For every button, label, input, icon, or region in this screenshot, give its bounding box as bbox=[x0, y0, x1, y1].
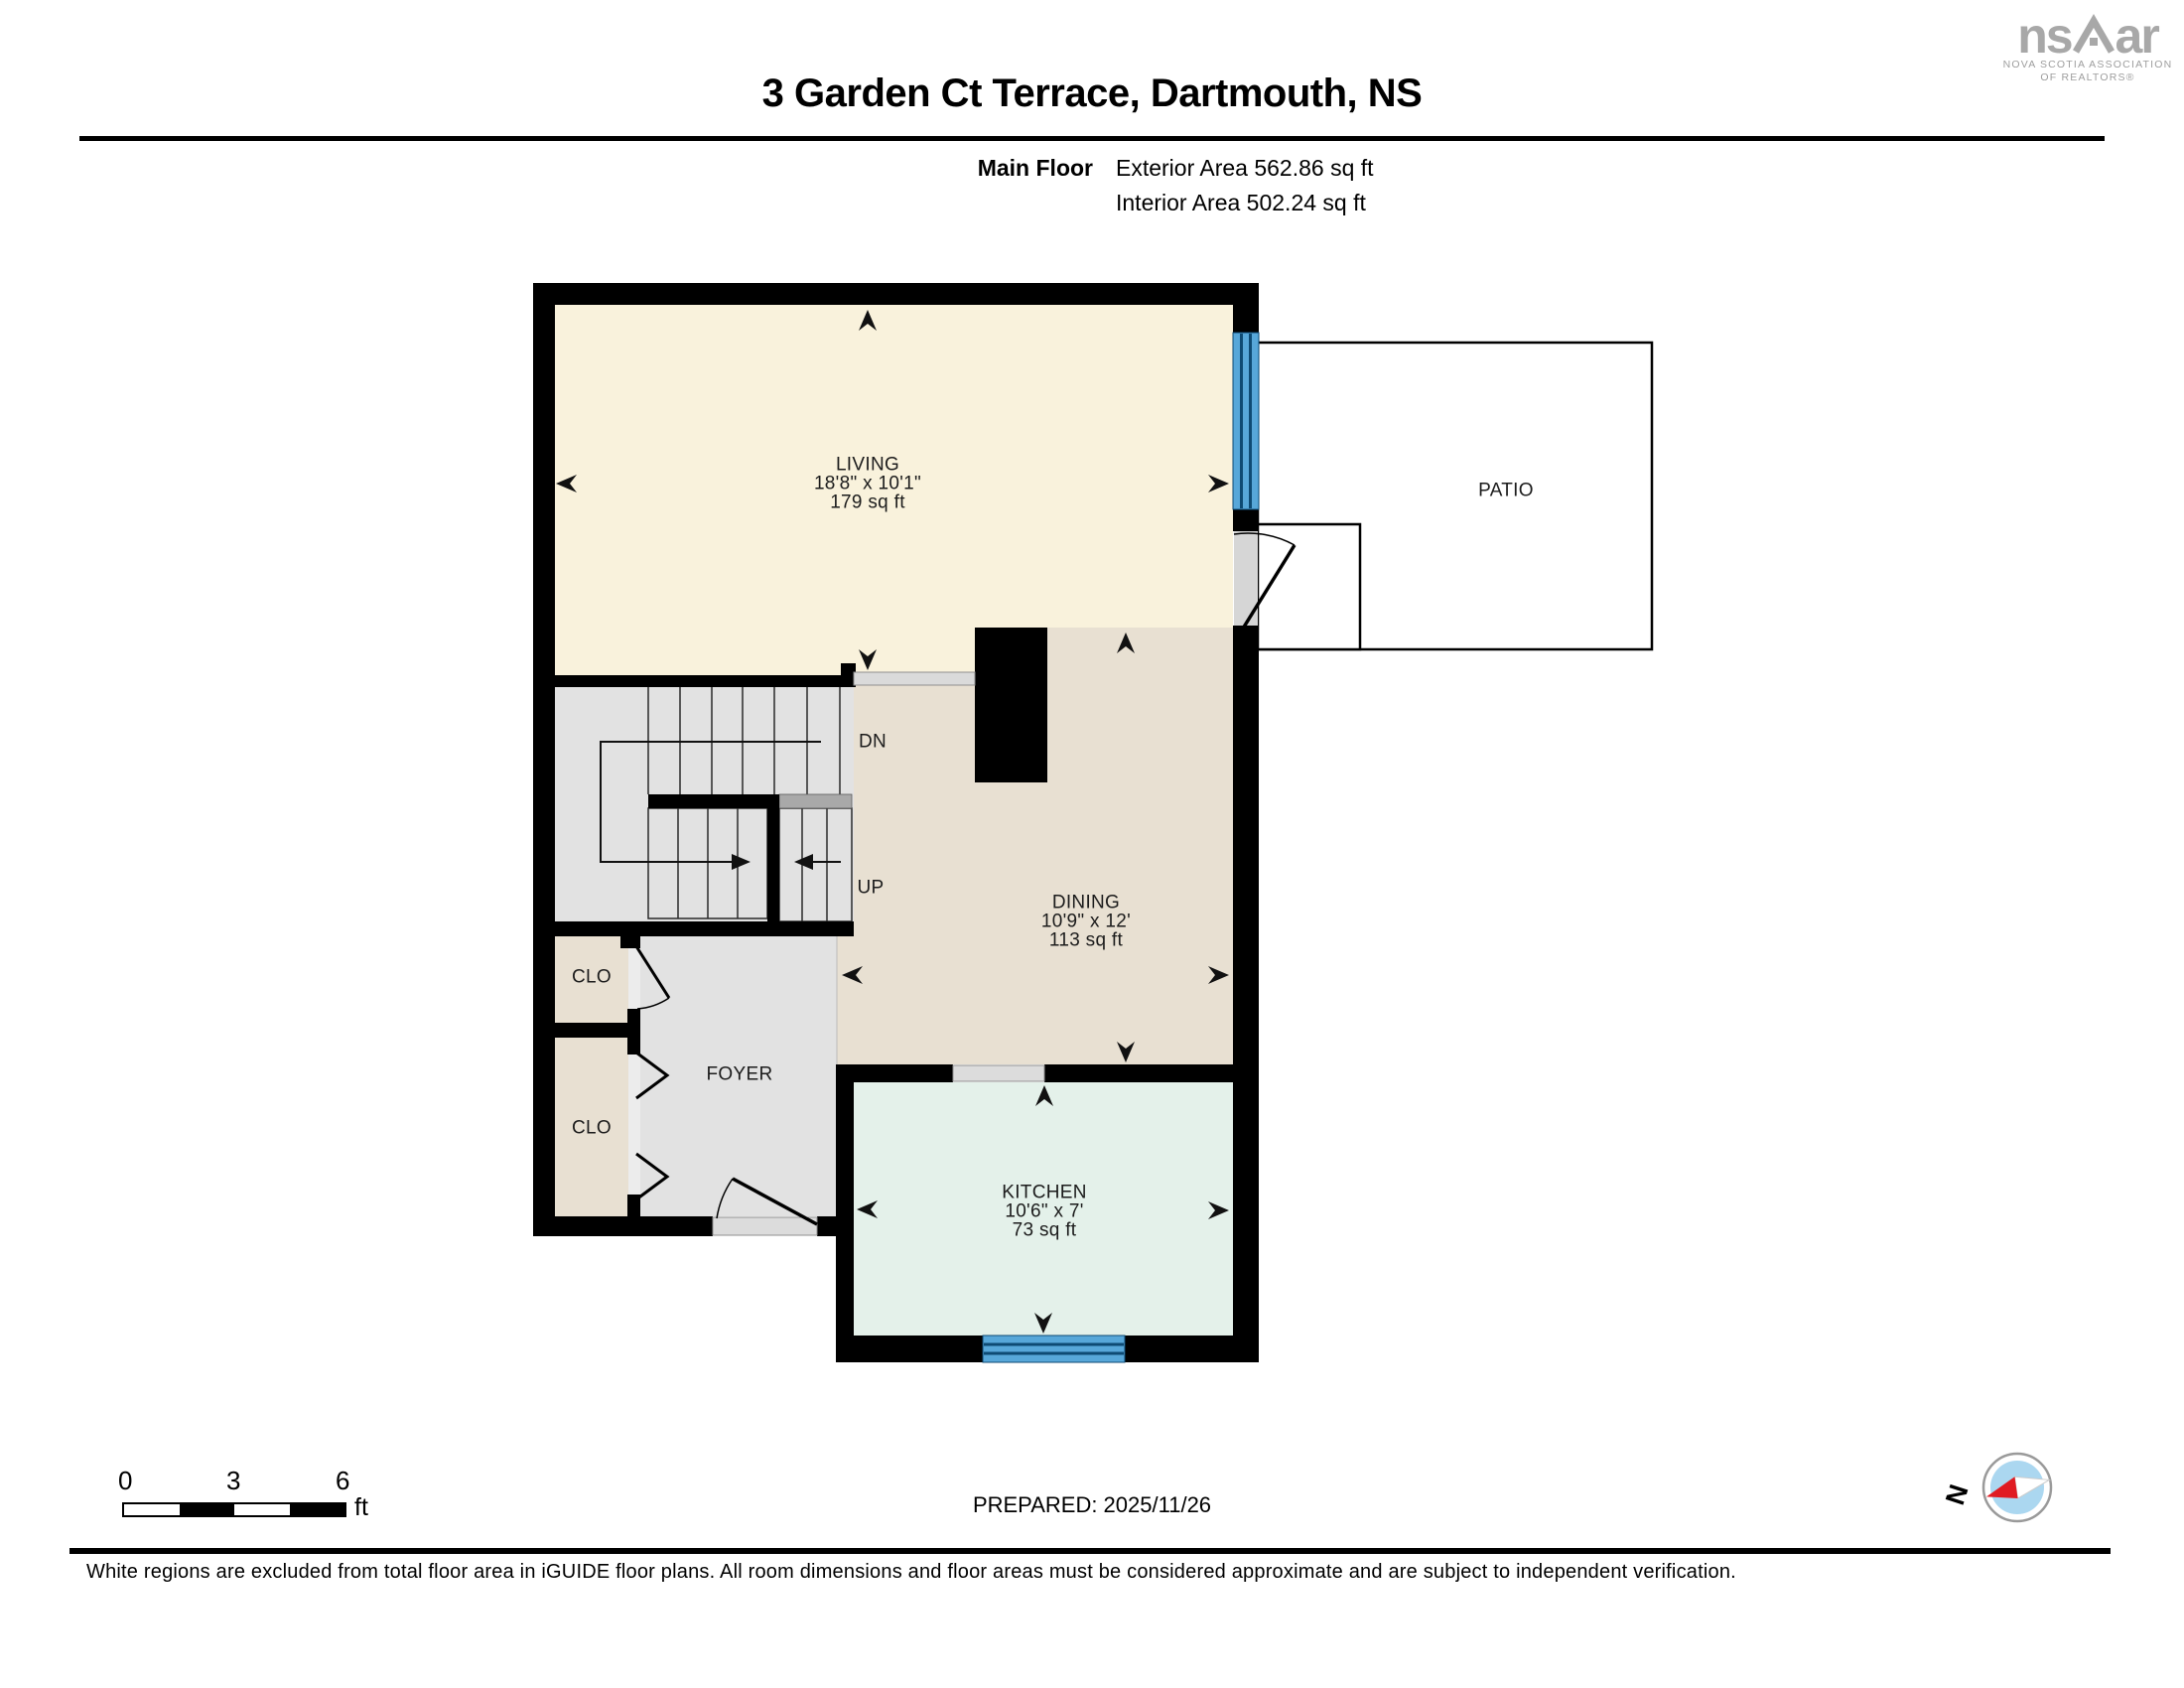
room-name: DINING bbox=[1041, 894, 1131, 913]
patio-outline bbox=[1258, 343, 1652, 649]
floor-plan-page: ns ar NOVA SCOTIA ASSOCIATION OF REALTOR… bbox=[0, 0, 2184, 1688]
stairs-down-label: DN bbox=[859, 733, 887, 752]
room-dimensions: 18'8" x 10'1" bbox=[814, 475, 921, 493]
kitchen-label: KITCHEN 10'6" x 7' 73 sq ft bbox=[1002, 1184, 1087, 1240]
closet-upper-label: CLO bbox=[572, 968, 612, 987]
closet-lower-label: CLO bbox=[572, 1119, 612, 1138]
disclaimer-text: White regions are excluded from total fl… bbox=[86, 1561, 1736, 1584]
closet-door-track bbox=[628, 936, 640, 1216]
prepared-date: PREPARED: 2025/11/26 bbox=[0, 1492, 2184, 1518]
compass-icon bbox=[1979, 1450, 2055, 1525]
dining-room-label: DINING 10'9" x 12' 113 sq ft bbox=[1041, 894, 1131, 950]
room-area: 73 sq ft bbox=[1002, 1221, 1087, 1240]
foyer-label: FOYER bbox=[707, 1065, 773, 1084]
patio-label: PATIO bbox=[1478, 482, 1534, 500]
room-area: 113 sq ft bbox=[1041, 931, 1131, 950]
room-name: LIVING bbox=[814, 456, 921, 475]
kitchen-opening bbox=[953, 1065, 1044, 1081]
footer-divider bbox=[69, 1548, 2111, 1554]
front-door-opening bbox=[713, 1217, 817, 1235]
stair-landing bbox=[779, 794, 852, 808]
chimney-column bbox=[975, 628, 1047, 782]
living-window bbox=[1233, 333, 1259, 509]
room-name: KITCHEN bbox=[1002, 1184, 1087, 1202]
living-room-label: LIVING 18'8" x 10'1" 179 sq ft bbox=[814, 456, 921, 512]
room-dimensions: 10'9" x 12' bbox=[1041, 913, 1131, 931]
room-dimensions: 10'6" x 7' bbox=[1002, 1202, 1087, 1221]
room-area: 179 sq ft bbox=[814, 493, 921, 512]
stairs-up-label: UP bbox=[858, 879, 885, 898]
kitchen-window bbox=[983, 1336, 1125, 1362]
floor-plan-drawing bbox=[0, 0, 2184, 1688]
living-dining-threshold bbox=[854, 672, 975, 685]
